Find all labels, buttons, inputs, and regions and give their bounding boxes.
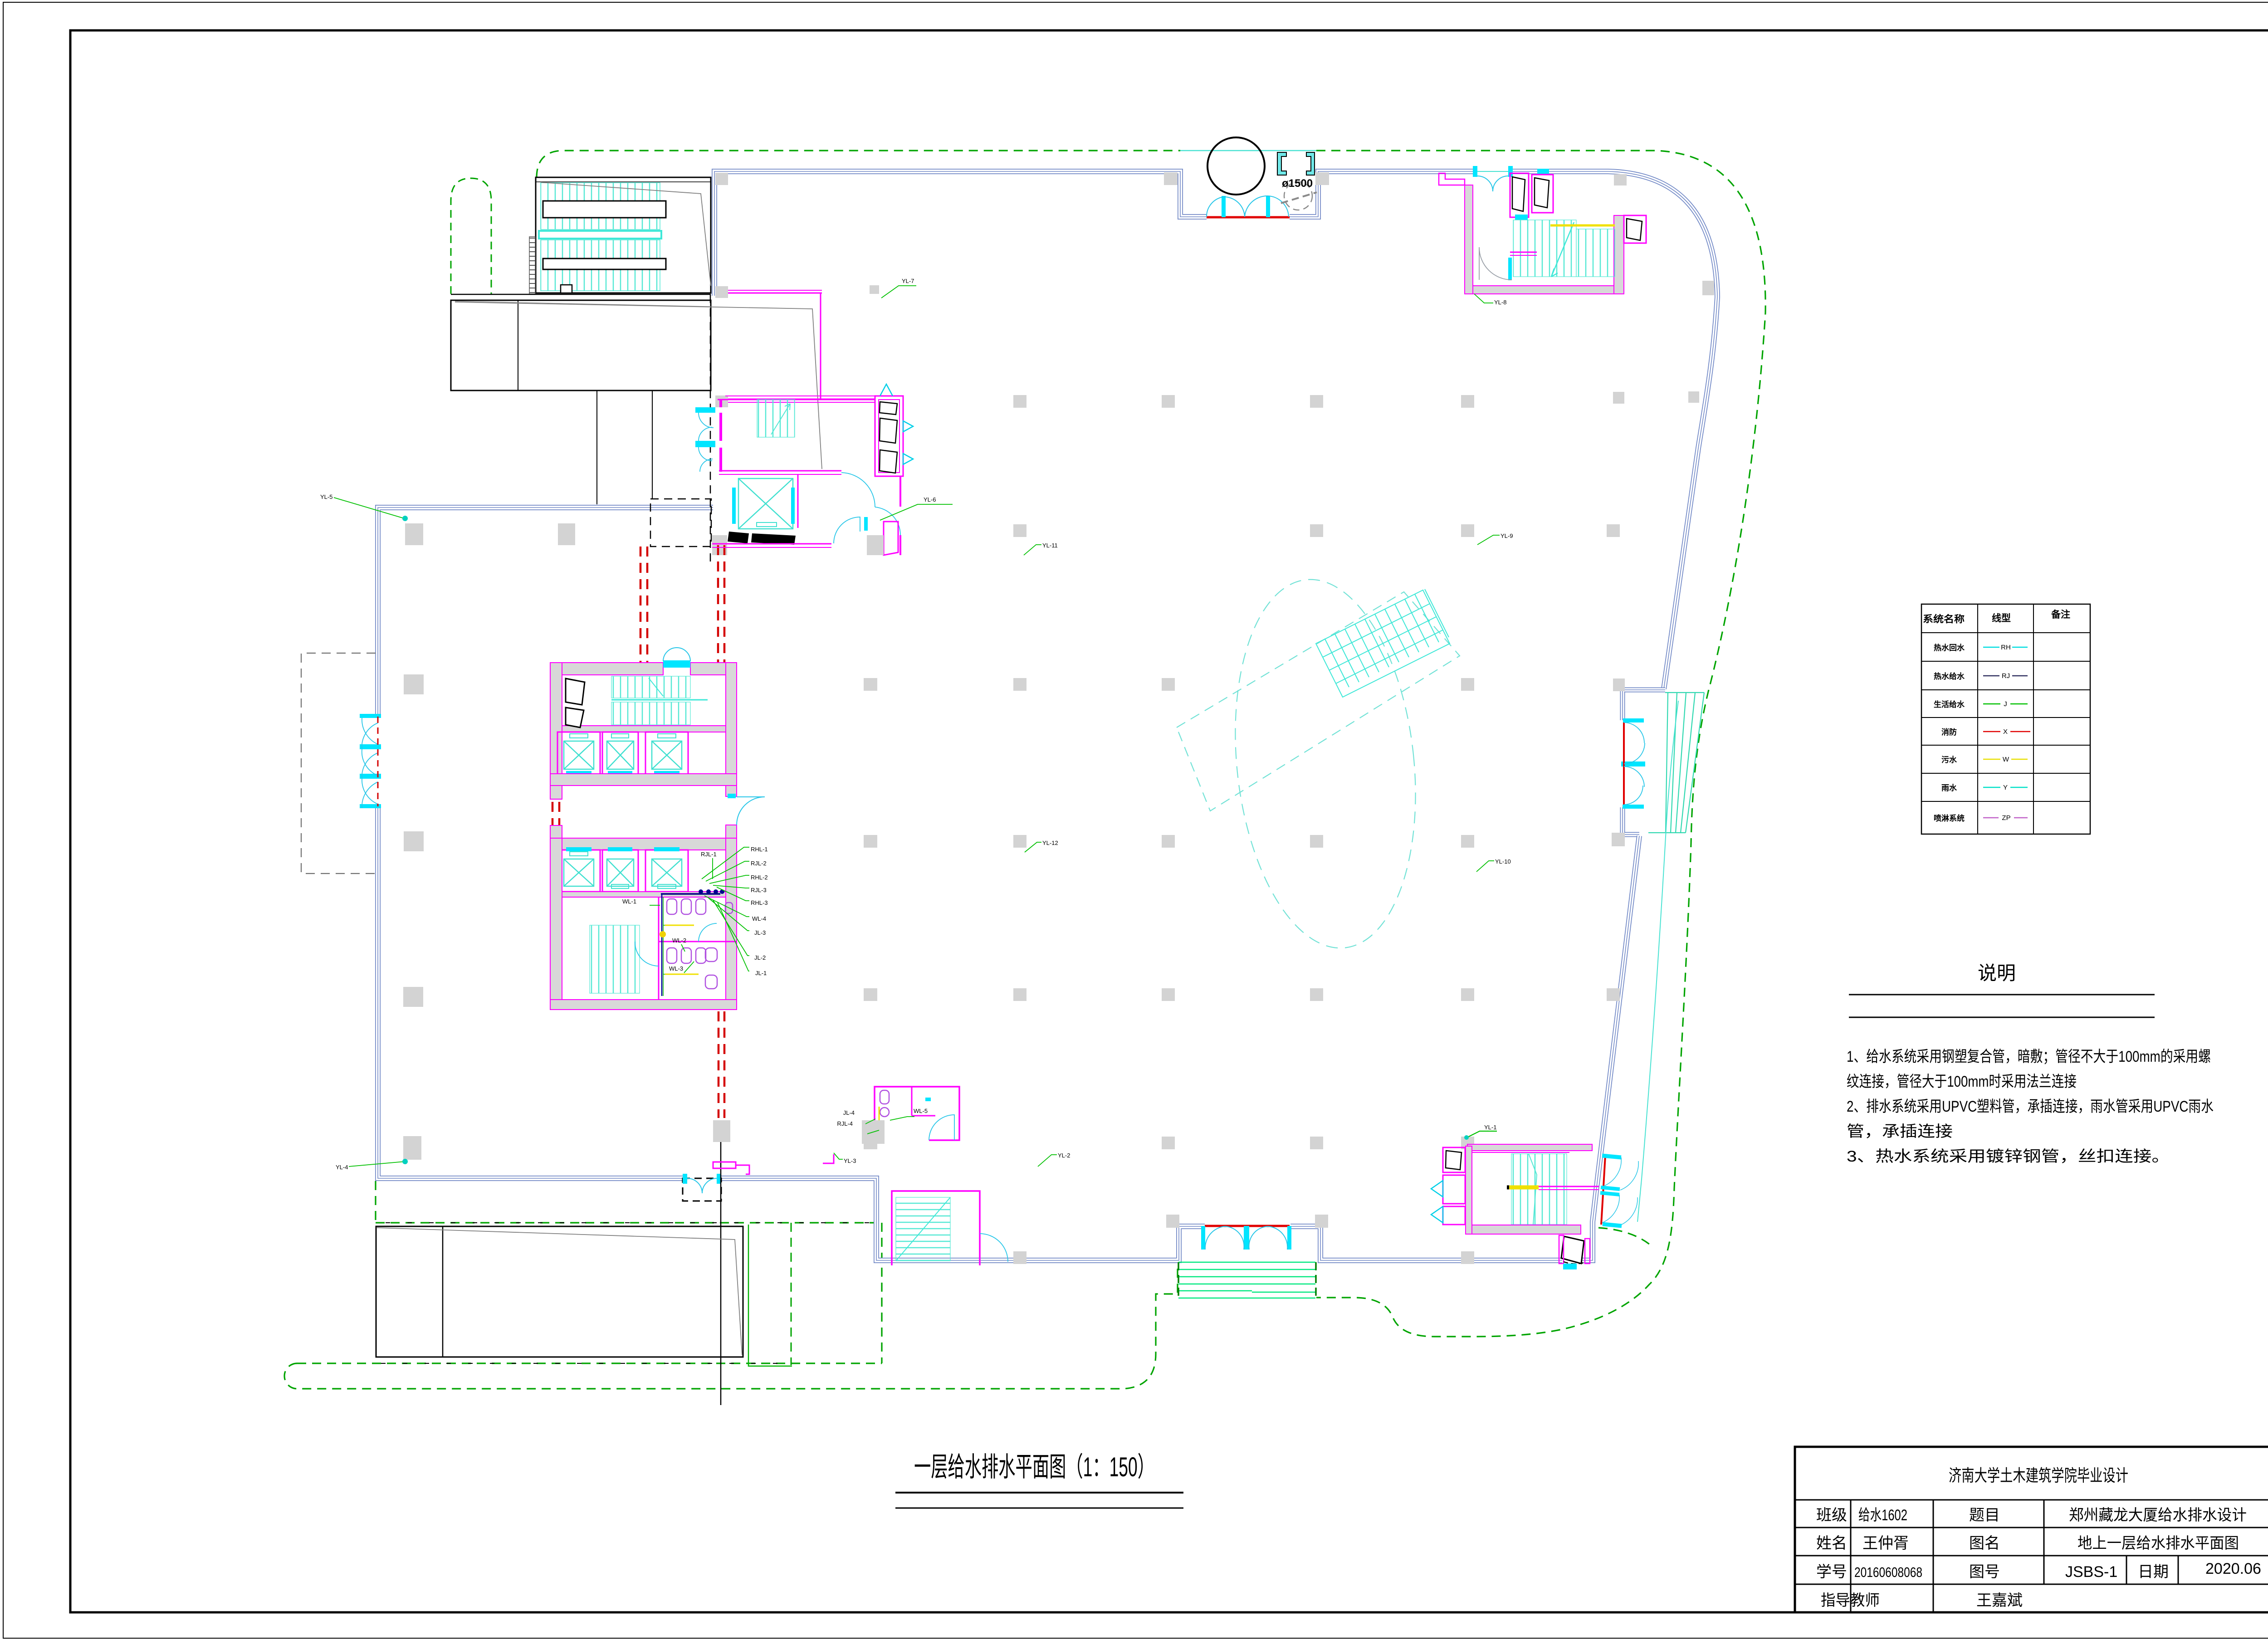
svg-text:JL-4: JL-4 — [843, 1109, 855, 1116]
svg-text:YL-12: YL-12 — [1042, 840, 1058, 846]
svg-text:YL-6: YL-6 — [924, 496, 936, 503]
svg-text:1、给水系统采用钢塑复合管，暗敷；管径不大于100mm的采用: 1、给水系统采用钢塑复合管，暗敷；管径不大于100mm的采用螺 — [1847, 1048, 2211, 1065]
svg-text:学号: 学号 — [1816, 1563, 1847, 1581]
svg-text:2、排水系统采用UPVC塑料管，承插连接，雨水管采用UPVC: 2、排水系统采用UPVC塑料管，承插连接，雨水管采用UPVC雨水 — [1847, 1098, 2214, 1115]
svg-text:雨水: 雨水 — [1941, 783, 1957, 792]
svg-text:说明: 说明 — [1978, 962, 2016, 984]
svg-text:纹连接，管径大于100mm时采用法兰连接: 纹连接，管径大于100mm时采用法兰连接 — [1847, 1073, 2077, 1090]
svg-text:RH: RH — [2001, 644, 2011, 651]
svg-text:3、热水系统采用镀锌钢管，丝扣连接。: 3、热水系统采用镀锌钢管，丝扣连接。 — [1847, 1148, 2170, 1165]
svg-text:X: X — [2003, 728, 2008, 736]
svg-text:姓名: 姓名 — [1816, 1535, 1847, 1552]
svg-text:RHL-2: RHL-2 — [751, 874, 768, 881]
svg-text:RJL-4: RJL-4 — [837, 1120, 853, 1127]
svg-text:RHL-3: RHL-3 — [751, 899, 768, 906]
svg-text:济南大学土木建筑学院毕业设计: 济南大学土木建筑学院毕业设计 — [1949, 1466, 2128, 1485]
svg-text:喷淋系统: 喷淋系统 — [1934, 814, 1965, 823]
svg-text:ZP: ZP — [2002, 814, 2010, 822]
svg-text:YL-9: YL-9 — [1501, 532, 1513, 539]
svg-text:YL-5: YL-5 — [320, 493, 332, 500]
svg-text:系统名称: 系统名称 — [1923, 614, 1965, 625]
svg-text:地上一层给水排水平面图: 地上一层给水排水平面图 — [2077, 1535, 2239, 1552]
svg-text:线型: 线型 — [1992, 613, 2011, 624]
svg-text:一层给水排水平面图（1：150）: 一层给水排水平面图（1：150） — [914, 1452, 1154, 1482]
svg-text:WL-2: WL-2 — [672, 937, 686, 944]
svg-text:20160608068: 20160608068 — [1854, 1564, 1922, 1580]
svg-text:热水回水: 热水回水 — [1934, 643, 1965, 652]
svg-text:图号: 图号 — [1969, 1563, 2000, 1581]
svg-text:题目: 题目 — [1969, 1507, 2000, 1524]
svg-text:YL-10: YL-10 — [1495, 858, 1511, 865]
svg-text:图名: 图名 — [1969, 1535, 2000, 1552]
svg-text:WL-1: WL-1 — [622, 898, 636, 905]
svg-text:YL-1: YL-1 — [1484, 1124, 1496, 1131]
svg-text:备注: 备注 — [2051, 609, 2070, 620]
svg-text:日期: 日期 — [2138, 1563, 2169, 1581]
svg-text:W: W — [2003, 756, 2009, 763]
svg-text:YL-11: YL-11 — [1042, 542, 1058, 549]
svg-text:RJL-3: RJL-3 — [751, 887, 767, 893]
svg-text:消防: 消防 — [1941, 727, 1957, 737]
svg-text:JL-1: JL-1 — [755, 970, 767, 976]
svg-text:YL-3: YL-3 — [844, 1157, 856, 1164]
svg-text:王仲胥: 王仲胥 — [1862, 1535, 1909, 1552]
svg-text:RJ: RJ — [2002, 672, 2010, 680]
svg-text:JSBS-1: JSBS-1 — [2065, 1563, 2117, 1581]
svg-text:2020.06: 2020.06 — [2205, 1560, 2261, 1577]
svg-text:指导教师: 指导教师 — [1821, 1592, 1880, 1609]
svg-text:JL-2: JL-2 — [754, 954, 766, 961]
svg-text:污水: 污水 — [1941, 755, 1957, 764]
svg-text:YL-7: YL-7 — [902, 278, 914, 284]
svg-text:RHL-1: RHL-1 — [751, 846, 768, 853]
svg-text:RJL-1: RJL-1 — [701, 851, 717, 858]
svg-text:郑州藏龙大厦给水排水设计: 郑州藏龙大厦给水排水设计 — [2069, 1507, 2247, 1524]
svg-text:班级: 班级 — [1816, 1507, 1847, 1524]
svg-text:YL-8: YL-8 — [1494, 299, 1506, 306]
svg-text:YL-4: YL-4 — [336, 1164, 348, 1171]
svg-text:WL-3: WL-3 — [669, 965, 683, 972]
svg-text:J: J — [2004, 700, 2007, 708]
svg-text:JL-3: JL-3 — [754, 929, 766, 936]
svg-text:管，承插连接: 管，承插连接 — [1847, 1123, 1953, 1140]
svg-text:Y: Y — [2003, 784, 2008, 791]
svg-text:给水1602: 给水1602 — [1858, 1507, 1907, 1524]
svg-text:王嘉斌: 王嘉斌 — [1976, 1592, 2023, 1609]
svg-text:ø1500: ø1500 — [1282, 177, 1313, 190]
svg-text:生活给水: 生活给水 — [1934, 700, 1965, 709]
svg-text:YL-2: YL-2 — [1058, 1152, 1070, 1159]
svg-text:热水给水: 热水给水 — [1934, 672, 1965, 681]
svg-text:WL-5: WL-5 — [914, 1108, 928, 1114]
svg-text:WL-4: WL-4 — [752, 915, 766, 922]
svg-text:RJL-2: RJL-2 — [751, 860, 767, 867]
